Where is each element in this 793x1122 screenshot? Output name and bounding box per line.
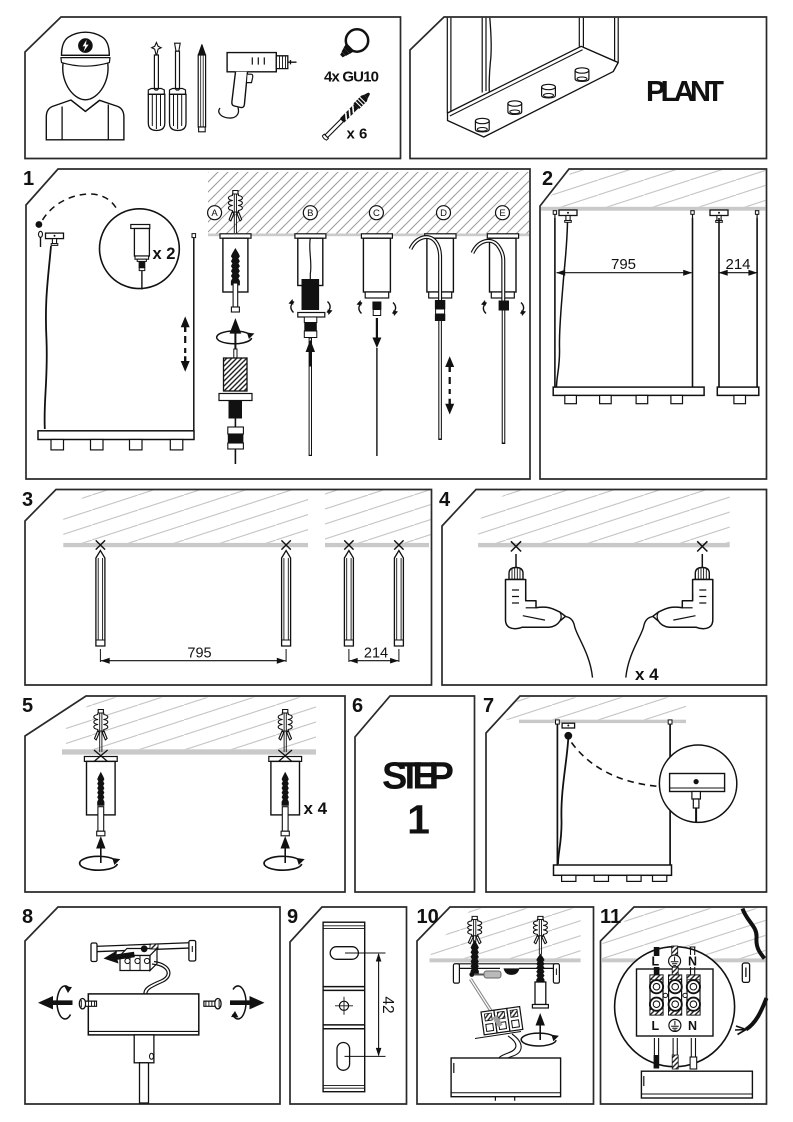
svg-text:42: 42 bbox=[379, 996, 396, 1013]
svg-text:E: E bbox=[499, 208, 505, 219]
svg-text:795: 795 bbox=[611, 256, 636, 273]
svg-text:7: 7 bbox=[483, 695, 494, 717]
svg-text:4: 4 bbox=[439, 489, 451, 511]
svg-text:L: L bbox=[652, 955, 660, 969]
svg-text:1: 1 bbox=[407, 797, 430, 843]
svg-text:214: 214 bbox=[364, 646, 388, 662]
svg-text:10: 10 bbox=[417, 906, 439, 928]
svg-text:214: 214 bbox=[725, 256, 750, 273]
svg-text:x 4: x 4 bbox=[635, 665, 659, 684]
svg-text:A: A bbox=[211, 208, 218, 219]
svg-text:8: 8 bbox=[22, 906, 33, 928]
svg-text:3: 3 bbox=[22, 489, 33, 511]
svg-text:x 6: x 6 bbox=[347, 126, 368, 143]
svg-text:STEP: STEP bbox=[382, 756, 454, 798]
svg-text:N: N bbox=[688, 1019, 697, 1033]
svg-text:6: 6 bbox=[352, 695, 363, 717]
svg-text:4x GU10: 4x GU10 bbox=[324, 69, 379, 86]
svg-text:x 4: x 4 bbox=[304, 799, 328, 818]
svg-text:5: 5 bbox=[22, 695, 33, 717]
svg-text:11: 11 bbox=[600, 906, 621, 928]
svg-text:B: B bbox=[307, 208, 313, 219]
svg-text:9: 9 bbox=[287, 906, 298, 928]
svg-text:795: 795 bbox=[187, 646, 211, 662]
svg-text:L: L bbox=[652, 1019, 660, 1033]
svg-text:2: 2 bbox=[542, 168, 553, 190]
svg-text:x 2: x 2 bbox=[153, 245, 176, 263]
svg-text:D: D bbox=[440, 208, 447, 219]
svg-text:PLANT: PLANT bbox=[646, 76, 724, 108]
svg-text:C: C bbox=[373, 208, 380, 219]
svg-text:1: 1 bbox=[23, 168, 34, 190]
svg-text:N: N bbox=[688, 955, 697, 969]
